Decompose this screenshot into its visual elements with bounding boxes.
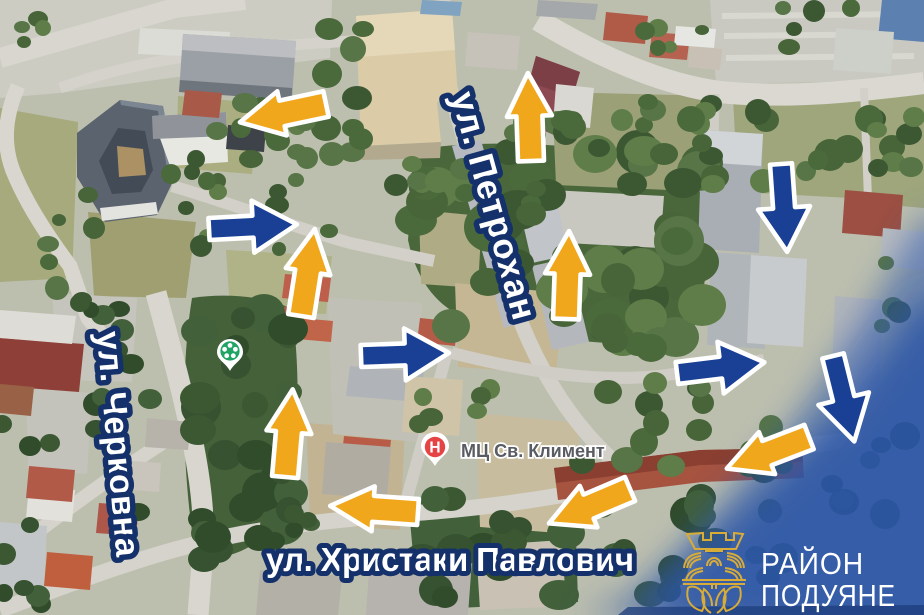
svg-text:ул. Христаки Павлович: ул. Христаки Павлович xyxy=(266,541,634,578)
svg-text:ПОДУЯНЕ: ПОДУЯНЕ xyxy=(761,578,896,613)
svg-text:МЦ Св. Климент: МЦ Св. Климент xyxy=(461,441,605,461)
svg-text:H: H xyxy=(429,440,440,457)
svg-text:РАЙОН: РАЙОН xyxy=(761,545,864,581)
